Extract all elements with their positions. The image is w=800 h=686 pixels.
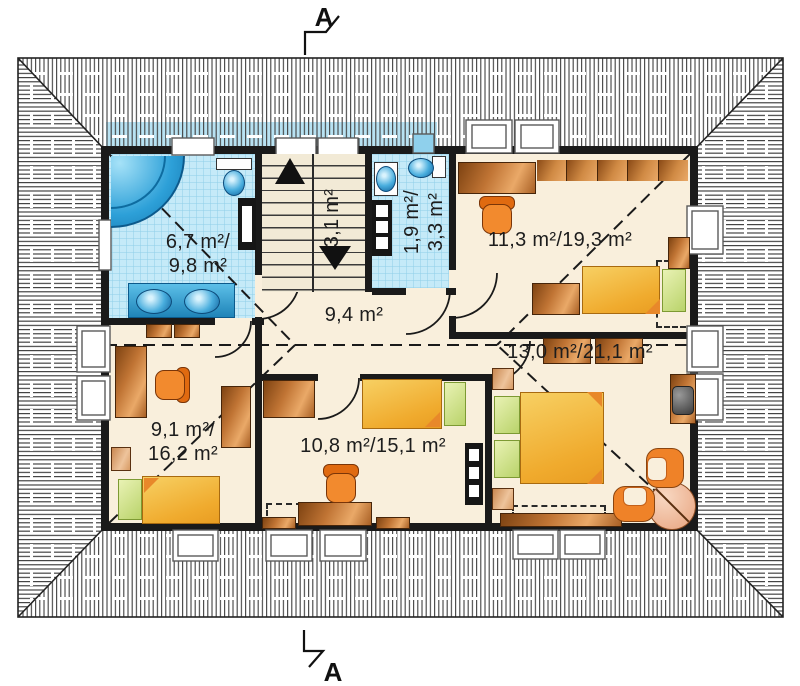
office-chair-icon <box>320 464 360 504</box>
wardrobe-row <box>537 160 688 181</box>
section-letter-top: A <box>315 2 334 32</box>
room-label-bedroom-center: 10,8 m²/15,1 m² <box>278 434 468 458</box>
room-label-hall: 9,4 m² <box>312 303 396 327</box>
toilet-tank <box>432 156 446 178</box>
plan-structure: A A <box>0 0 800 686</box>
toilet-icon <box>408 158 434 178</box>
shelf <box>262 517 296 529</box>
section-marker-bottom <box>304 630 323 667</box>
wardrobe <box>263 380 315 418</box>
dresser <box>668 237 690 269</box>
staircase-icon <box>262 154 365 292</box>
bed-icon <box>116 476 220 524</box>
toilet-icon <box>223 170 245 196</box>
room-label-bedroom-left: 9,1 m²/ 16,2 m² <box>128 418 238 467</box>
sink-icon <box>136 289 172 314</box>
desk <box>115 346 147 418</box>
desk <box>458 162 536 194</box>
long-dresser <box>500 513 622 527</box>
armchair-icon <box>646 448 684 488</box>
tv-icon <box>672 386 694 415</box>
room-label-bathroom: 6,7 m²/ 9,8 m² <box>138 230 258 279</box>
dresser <box>146 324 172 338</box>
sink-icon <box>184 289 220 314</box>
floor-plan: A A <box>0 0 800 686</box>
sink-icon <box>376 166 396 192</box>
room-label-bedroom-right: 13,0 m²/21,1 m² <box>480 340 680 364</box>
bed-icon <box>582 266 688 316</box>
section-letter-bottom: A <box>324 657 343 686</box>
room-label-wc: 1,9 m²/ 3,3 m² <box>400 180 448 264</box>
room-label-bedroom-top-right: 11,3 m²/19,3 m² <box>460 228 660 252</box>
round-table-icon <box>648 482 696 530</box>
shelf <box>376 517 410 529</box>
office-chair-icon <box>150 364 190 404</box>
nightstand <box>492 488 514 510</box>
bed-icon <box>362 379 468 429</box>
nightstand <box>532 283 580 315</box>
desk <box>298 502 372 526</box>
toilet-tank <box>216 158 252 170</box>
double-bed-icon <box>492 390 604 486</box>
wc-shelf <box>372 200 392 256</box>
room-label-stairs: 3,1 m² <box>320 178 344 258</box>
armchair-icon <box>613 486 655 522</box>
stairs-up-arrow <box>275 158 305 184</box>
nightstand <box>492 368 514 390</box>
dresser <box>174 324 200 338</box>
